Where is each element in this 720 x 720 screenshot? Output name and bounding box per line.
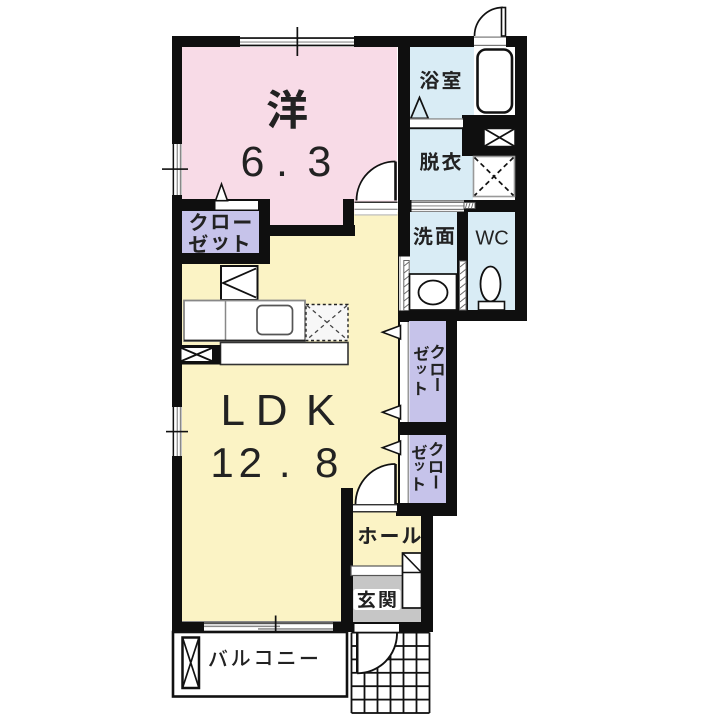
svg-text:.: . <box>276 138 288 186</box>
svg-text:WC: WC <box>475 228 508 250</box>
svg-text:K: K <box>306 386 335 435</box>
svg-text:1: 1 <box>210 439 233 486</box>
svg-text:D: D <box>256 386 288 435</box>
svg-text:L: L <box>220 386 244 435</box>
svg-text:.: . <box>279 439 291 486</box>
svg-text:3: 3 <box>307 138 331 186</box>
svg-text:6: 6 <box>241 138 265 186</box>
svg-text:2: 2 <box>239 439 262 486</box>
svg-text:8: 8 <box>315 439 338 486</box>
